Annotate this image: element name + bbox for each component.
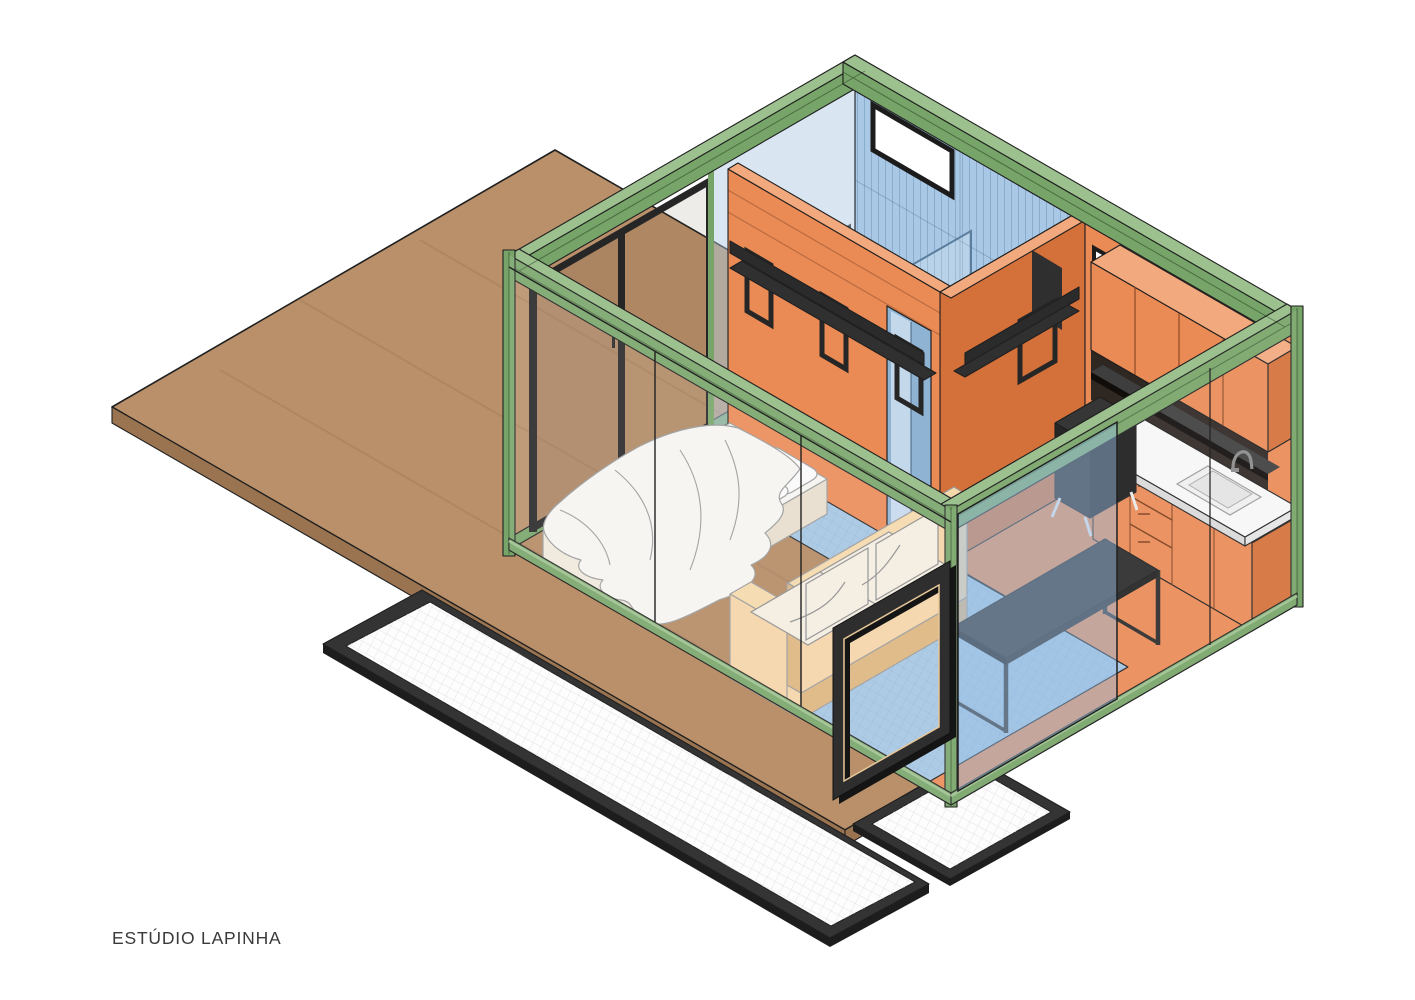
axonometric-drawing: ESTÚDIO LAPINHA [0,0,1415,1000]
project-title: ESTÚDIO LAPINHA [112,927,282,948]
drawing-page: ESTÚDIO LAPINHA [0,0,1415,1000]
